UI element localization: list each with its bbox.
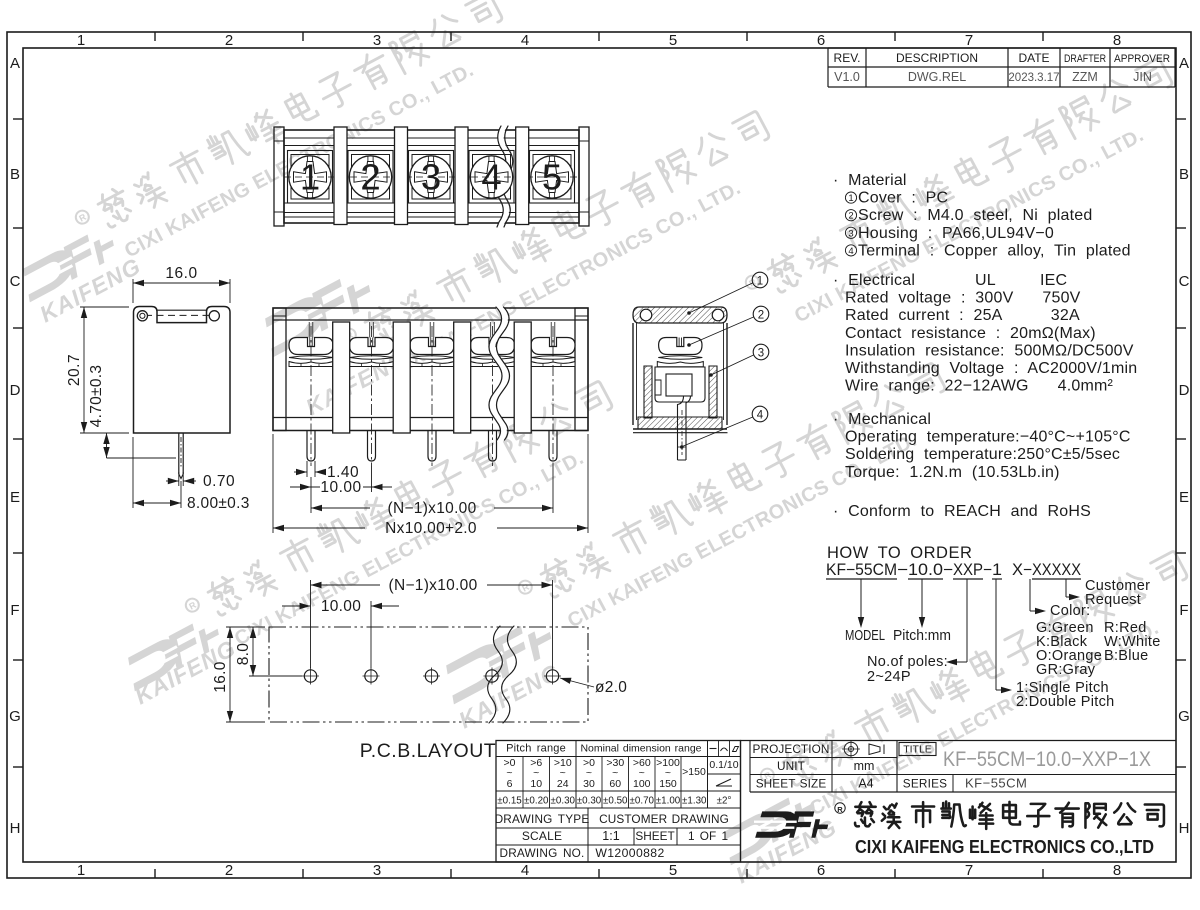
svg-text:A: A xyxy=(10,55,20,72)
svg-text:mm: mm xyxy=(854,759,875,773)
svg-text:7: 7 xyxy=(965,862,973,879)
svg-text:6: 6 xyxy=(817,32,825,49)
svg-text:Terminal : Copper alloy, Tin p: Terminal : Copper alloy, Tin plated xyxy=(858,242,1131,259)
svg-text:±0.50: ±0.50 xyxy=(603,796,628,807)
svg-text:DWG.REL: DWG.REL xyxy=(908,70,966,84)
svg-text:±1.00: ±1.00 xyxy=(656,796,681,807)
svg-text:C: C xyxy=(10,273,21,290)
svg-text:Request: Request xyxy=(1085,592,1141,608)
svg-text:Operating temperature:−40°C~+1: Operating temperature:−40°C~+105°C xyxy=(845,429,1131,446)
svg-text:D: D xyxy=(10,382,21,399)
svg-text:1 OF 1: 1 OF 1 xyxy=(688,829,728,843)
svg-text:KF−55CM: KF−55CM xyxy=(826,561,897,579)
svg-text:(N−1)x10.00: (N−1)x10.00 xyxy=(388,577,477,594)
svg-text:±0.70: ±0.70 xyxy=(630,796,655,807)
svg-text:C: C xyxy=(1179,273,1190,290)
svg-text:4: 4 xyxy=(848,246,853,257)
svg-text:−: − xyxy=(1023,561,1032,579)
svg-text:8.00±0.3: 8.00±0.3 xyxy=(187,495,250,512)
svg-text:IEC: IEC xyxy=(1040,272,1067,289)
svg-text:ø2.0: ø2.0 xyxy=(595,679,627,696)
svg-text:2: 2 xyxy=(758,310,764,322)
svg-text:SERIES: SERIES xyxy=(903,777,947,791)
svg-text:· Electrical: · Electrical xyxy=(833,272,915,289)
svg-text:7: 7 xyxy=(965,32,973,49)
svg-text:1: 1 xyxy=(848,193,853,204)
svg-text:5: 5 xyxy=(542,157,562,198)
svg-text:Rated current : 25A 32A: Rated current : 25A 32A xyxy=(845,307,1080,324)
svg-text:30: 30 xyxy=(583,778,595,790)
svg-text:Cover : PC: Cover : PC xyxy=(858,190,948,207)
svg-text:B: B xyxy=(10,166,20,183)
svg-text:SHEET SIZE: SHEET SIZE xyxy=(756,777,827,791)
svg-text:±0.15: ±0.15 xyxy=(497,796,522,807)
svg-text:G: G xyxy=(9,708,21,725)
svg-text:±0.30: ±0.30 xyxy=(577,796,602,807)
svg-text:2: 2 xyxy=(360,157,380,198)
svg-text:No.of poles:: No.of poles: xyxy=(867,654,948,670)
svg-text:Pitch:mm: Pitch:mm xyxy=(893,628,951,644)
svg-text:DRAWING NO.: DRAWING NO. xyxy=(499,846,584,860)
svg-text:16.0: 16.0 xyxy=(212,661,229,692)
svg-text:0.70: 0.70 xyxy=(203,473,235,490)
svg-text:XXXXX: XXXXX xyxy=(1032,561,1081,579)
svg-text:5: 5 xyxy=(669,32,677,49)
svg-text:5: 5 xyxy=(669,862,677,879)
svg-text:SCALE: SCALE xyxy=(522,829,562,843)
svg-text:A4: A4 xyxy=(858,777,873,791)
svg-text:DRAWING TYPE: DRAWING TYPE xyxy=(495,812,590,826)
svg-text:PROJECTION: PROJECTION xyxy=(752,742,829,756)
svg-text:DRAFTER: DRAFTER xyxy=(1064,53,1106,65)
svg-text:3: 3 xyxy=(421,157,441,198)
svg-text:ZZM: ZZM xyxy=(1072,70,1098,84)
svg-text:X: X xyxy=(1012,561,1023,579)
svg-text:3: 3 xyxy=(373,862,381,879)
svg-text:F: F xyxy=(10,602,19,619)
svg-text:2~24P: 2~24P xyxy=(867,669,911,685)
svg-text:Nominal dimension range: Nominal dimension range xyxy=(580,743,701,755)
svg-text:H: H xyxy=(1179,820,1190,837)
svg-text:JIN: JIN xyxy=(1133,70,1152,84)
svg-text:±0.30: ±0.30 xyxy=(551,796,576,807)
svg-text:A: A xyxy=(1179,55,1189,72)
svg-text:0.1/10: 0.1/10 xyxy=(709,759,738,771)
svg-text:3: 3 xyxy=(758,348,764,360)
svg-text:· Material: · Material xyxy=(833,172,907,189)
svg-text:· Conform to REACH and RoHS: · Conform to REACH and RoHS xyxy=(833,503,1091,520)
svg-text:SHEET: SHEET xyxy=(635,829,674,843)
svg-text:DATE: DATE xyxy=(1018,51,1049,65)
svg-text:±0.20: ±0.20 xyxy=(524,796,549,807)
svg-text:R: R xyxy=(837,805,843,814)
svg-text:1: 1 xyxy=(77,32,85,49)
svg-text:1: 1 xyxy=(300,157,320,198)
svg-text:60: 60 xyxy=(609,778,621,790)
svg-text:>150: >150 xyxy=(682,766,706,778)
svg-text:Soldering temperature:250°C±5/: Soldering temperature:250°C±5/5sec xyxy=(845,446,1120,463)
svg-text:10.00: 10.00 xyxy=(320,479,361,496)
svg-text:Screw : M4.0 steel, Ni plated: Screw : M4.0 steel, Ni plated xyxy=(858,207,1092,224)
svg-text:24: 24 xyxy=(557,778,569,790)
svg-text:Nx10.00+2.0: Nx10.00+2.0 xyxy=(385,520,477,537)
svg-text:UNIT: UNIT xyxy=(777,759,805,773)
svg-text:(N−1)x10.00: (N−1)x10.00 xyxy=(387,500,476,517)
svg-text:4: 4 xyxy=(481,157,501,198)
svg-text:Insulation resistance: 500MΩ/D: Insulation resistance: 500MΩ/DC500V xyxy=(845,342,1134,359)
svg-text:E: E xyxy=(10,489,20,506)
svg-text:10.0: 10.0 xyxy=(908,561,943,579)
svg-text:1: 1 xyxy=(77,862,85,879)
svg-text:6: 6 xyxy=(817,862,825,879)
svg-text:Withstanding Voltage : AC2000V: Withstanding Voltage : AC2000V/1min xyxy=(845,360,1137,377)
svg-text:2023.3.17: 2023.3.17 xyxy=(1008,72,1059,84)
svg-text:CUSTOMER DRAWING: CUSTOMER DRAWING xyxy=(599,812,729,826)
svg-text:1:1: 1:1 xyxy=(602,829,619,843)
svg-text:2: 2 xyxy=(225,862,233,879)
svg-text:1: 1 xyxy=(757,276,763,288)
svg-text:REV.: REV. xyxy=(834,51,861,65)
svg-text:−: − xyxy=(943,561,953,579)
svg-text:APPROVER: APPROVER xyxy=(1114,53,1170,65)
svg-text:B:Blue: B:Blue xyxy=(1104,648,1149,664)
svg-text:4: 4 xyxy=(757,410,764,422)
svg-text:CIXI KAIFENG ELECTRONICS CO.,L: CIXI KAIFENG ELECTRONICS CO.,LTD xyxy=(855,836,1154,857)
svg-text:2: 2 xyxy=(848,211,853,222)
svg-text:DESCRIPTION: DESCRIPTION xyxy=(896,51,978,65)
svg-text:H: H xyxy=(10,820,21,837)
svg-text:KF−55CM: KF−55CM xyxy=(965,776,1027,791)
svg-text:Torque: 1.2N.m (10.53Lb.in): Torque: 1.2N.m (10.53Lb.in) xyxy=(845,464,1060,481)
svg-text:HOW TO ORDER: HOW TO ORDER xyxy=(827,544,972,562)
svg-text:Contact resistance : 20mΩ(Max): Contact resistance : 20mΩ(Max) xyxy=(845,325,1096,342)
svg-text:4: 4 xyxy=(521,862,529,879)
svg-text:P.C.B.LAYOUT: P.C.B.LAYOUT xyxy=(360,740,496,762)
svg-text:20.7: 20.7 xyxy=(66,354,83,386)
svg-text:F: F xyxy=(1179,602,1188,619)
svg-text:Pitch range: Pitch range xyxy=(506,743,566,755)
svg-text:3: 3 xyxy=(848,228,853,239)
svg-text:KF−55CM−10.0−XXP−1X: KF−55CM−10.0−XXP−1X xyxy=(943,747,1151,771)
svg-text:2:Double Pitch: 2:Double Pitch xyxy=(1016,694,1115,710)
svg-text:10.00: 10.00 xyxy=(321,598,361,615)
svg-text:XXP: XXP xyxy=(953,561,983,579)
svg-text:GR:Gray: GR:Gray xyxy=(1036,662,1096,678)
svg-text:· Mechanical: · Mechanical xyxy=(833,411,931,428)
svg-text:B: B xyxy=(1179,166,1189,183)
svg-text:G: G xyxy=(1178,708,1190,725)
svg-text:Housing : PA66,UL94V−0: Housing : PA66,UL94V−0 xyxy=(858,225,1054,242)
svg-text:2: 2 xyxy=(225,32,233,49)
svg-text:−: − xyxy=(897,561,908,579)
svg-text:MODEL: MODEL xyxy=(845,628,885,644)
svg-text:6: 6 xyxy=(507,778,513,790)
svg-text:D: D xyxy=(1179,382,1190,399)
svg-text:E: E xyxy=(1179,489,1189,506)
svg-text:8: 8 xyxy=(1113,862,1121,879)
svg-text:10: 10 xyxy=(530,778,542,790)
svg-text:4: 4 xyxy=(521,32,529,49)
svg-text:Rated voltage : 300V 750V: Rated voltage : 300V 750V xyxy=(845,290,1081,307)
svg-text:TITLE: TITLE xyxy=(903,744,932,756)
svg-text:±2°: ±2° xyxy=(717,796,732,807)
svg-text:V1.0: V1.0 xyxy=(834,70,860,84)
svg-text:−: − xyxy=(983,561,992,579)
svg-text:8: 8 xyxy=(1113,32,1121,49)
svg-text:1: 1 xyxy=(992,561,1002,579)
svg-text:100: 100 xyxy=(633,778,651,790)
svg-text:3: 3 xyxy=(373,32,381,49)
svg-text:UL: UL xyxy=(975,272,996,289)
svg-text:16.0: 16.0 xyxy=(165,265,197,282)
svg-text:±1.30: ±1.30 xyxy=(682,796,707,807)
svg-text:8.0: 8.0 xyxy=(235,643,252,666)
svg-text:W12000882: W12000882 xyxy=(595,846,664,860)
svg-text:4.70±0.3: 4.70±0.3 xyxy=(88,365,105,428)
svg-text:150: 150 xyxy=(659,778,677,790)
svg-text:Wire range: 22−12AWG 4.0mm²: Wire range: 22−12AWG 4.0mm² xyxy=(845,378,1114,395)
